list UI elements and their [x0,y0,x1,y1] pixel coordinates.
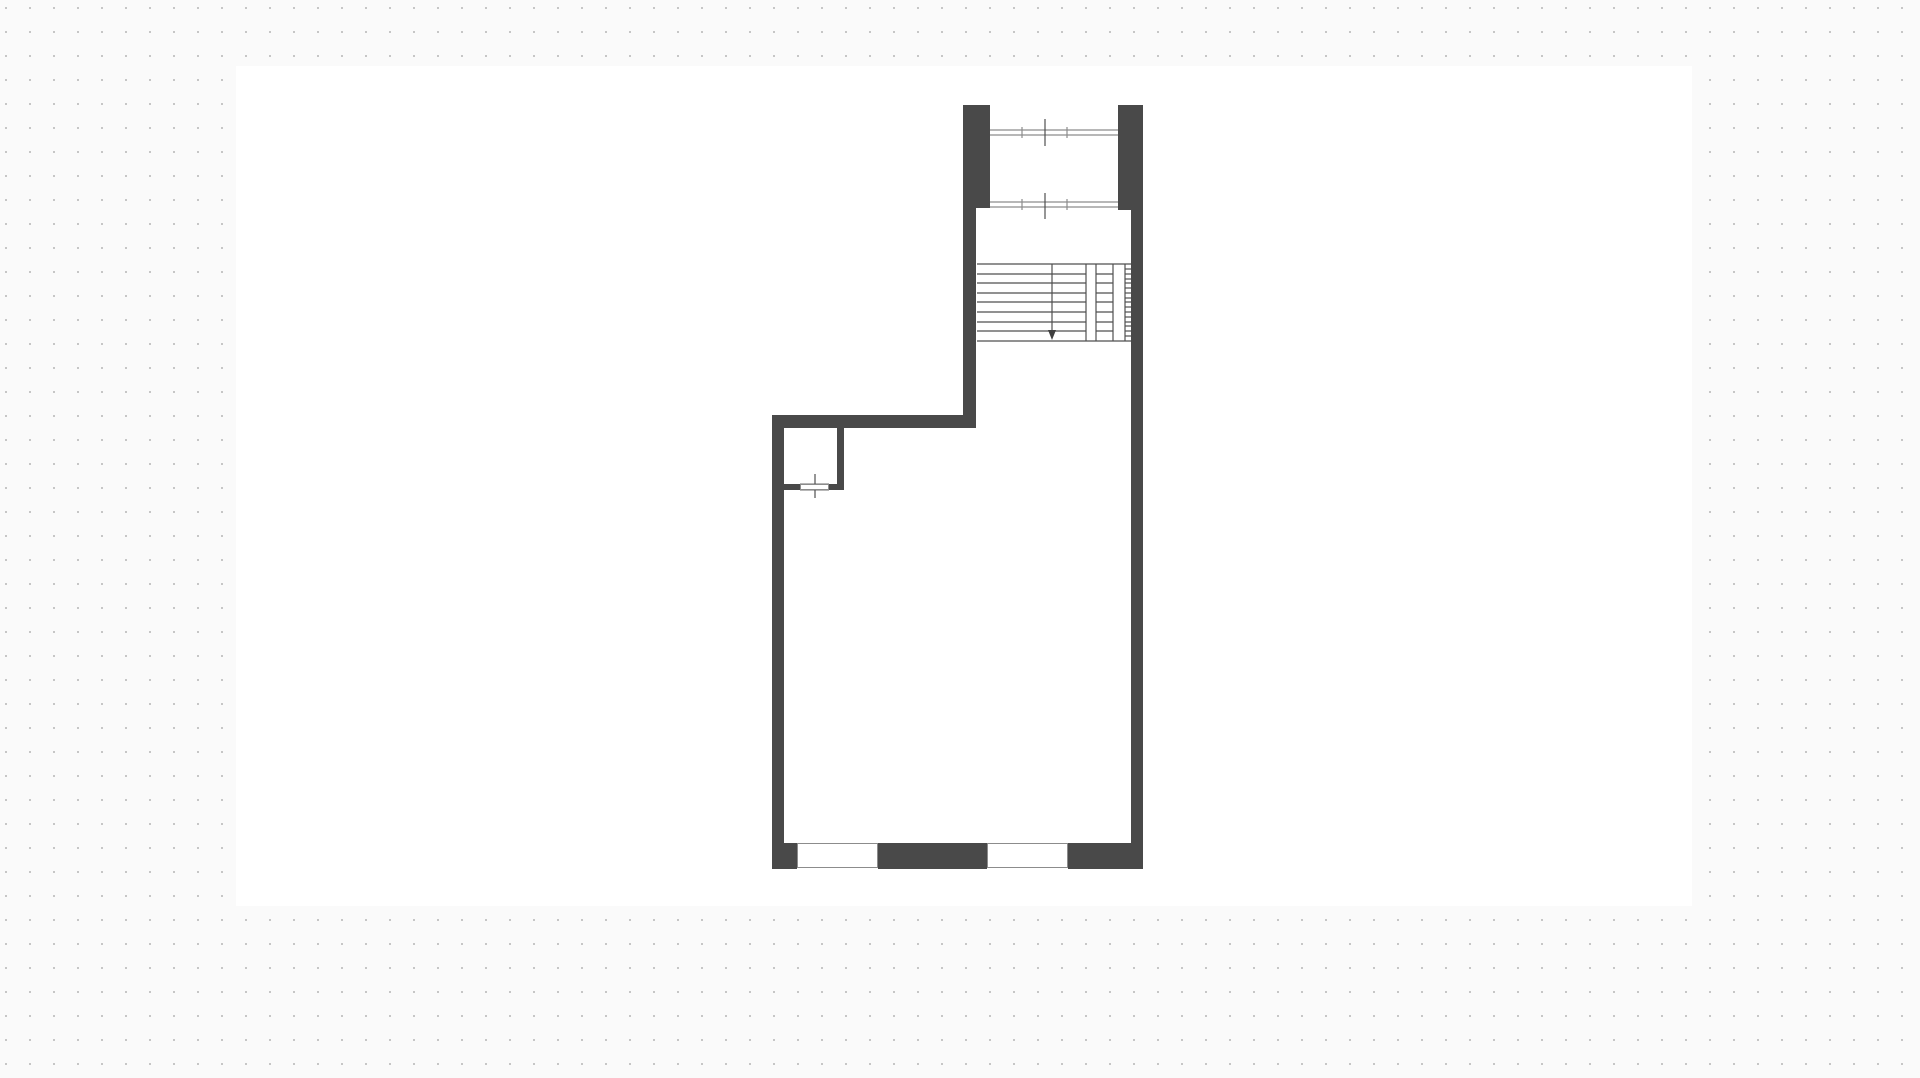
left-exterior-wall[interactable] [772,415,784,869]
stairwell-left-wall[interactable] [963,205,976,428]
bottom-window-right[interactable] [988,844,1068,868]
upper-pillar-right[interactable] [1118,105,1143,210]
closet-bottom-wall-a[interactable] [784,484,800,490]
bottom-wall-middle[interactable] [878,843,987,869]
room-top-wall[interactable] [772,415,976,428]
closet-partition-wall[interactable] [837,427,844,490]
upper-pillar-left[interactable] [963,105,990,208]
closet-door-opening[interactable] [801,485,829,490]
bottom-window-left[interactable] [798,844,878,868]
bottom-wall-left[interactable] [772,843,797,869]
editor-canvas[interactable] [0,0,1920,1078]
bottom-wall-right[interactable] [1068,843,1143,869]
closet-bottom-wall-b[interactable] [829,484,837,490]
right-exterior-wall[interactable] [1131,205,1143,869]
floor-plan-scene [0,0,1920,1078]
